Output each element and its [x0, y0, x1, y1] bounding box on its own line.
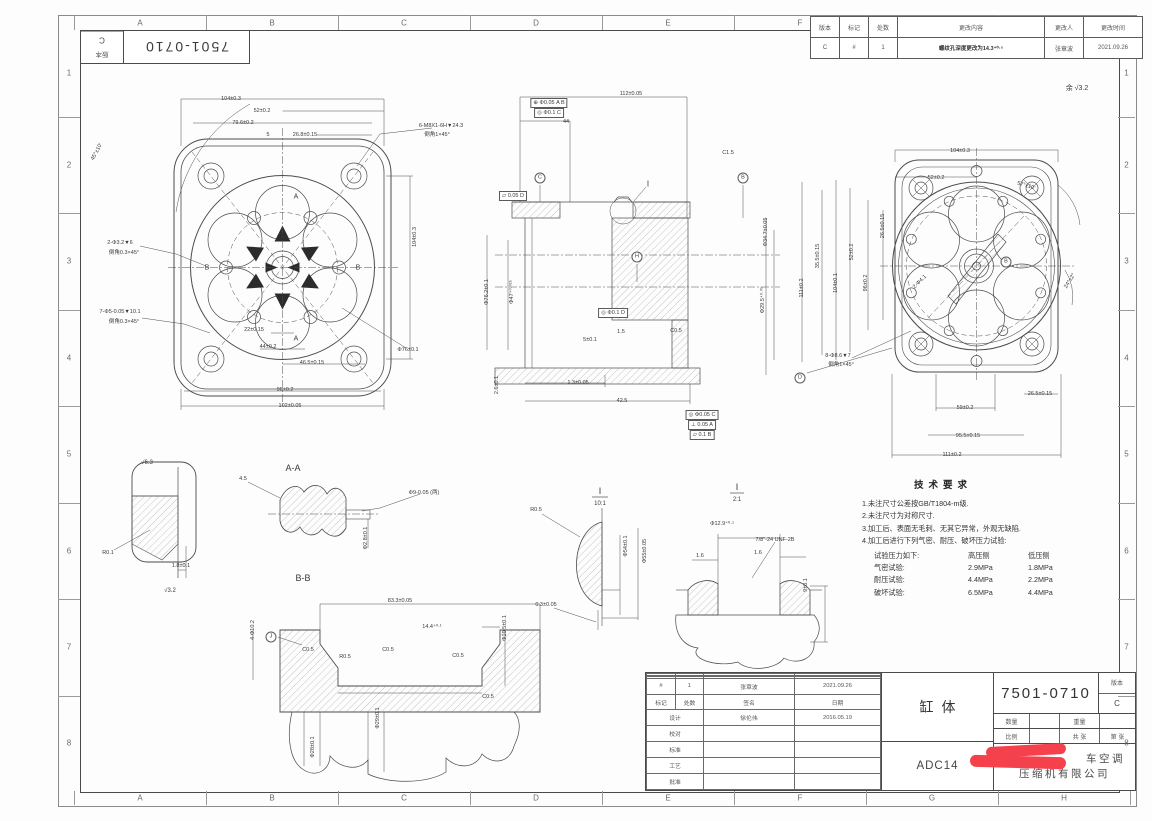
corner-part-number: 7501-0710 — [124, 31, 249, 63]
zone-row-label: 4 — [1124, 354, 1128, 363]
revision-data-cell: C — [811, 38, 840, 59]
s-cell: 处数 — [676, 694, 704, 710]
tech-requirements-title: 技术要求 — [914, 478, 1114, 495]
view-a-a — [248, 482, 420, 548]
zone-row-label: 8 — [1124, 739, 1128, 748]
s-cell — [704, 773, 795, 789]
sign-label-cell: 标准 — [647, 742, 704, 758]
zone-col-label: H — [1061, 794, 1067, 803]
tech-note-line: 1.未注尺寸公差按GB/T1804-m级. — [862, 498, 1114, 511]
zone-row-label: 5 — [67, 450, 71, 459]
s-cell: # — [647, 678, 676, 694]
s-cell: 2016.05.19 — [795, 710, 881, 726]
zone-row-label: 3 — [1124, 257, 1128, 266]
revision-data-cell: 张章波 — [1045, 38, 1084, 59]
pressure-cell: 4.4MPa — [968, 574, 1028, 586]
zone-col-label: A — [137, 18, 142, 27]
title-block: #1张章波2021.09.26标记处数签名日期设计徐伦伟2016.05.19校对… — [645, 672, 1136, 791]
zone-row-label: 5 — [1124, 450, 1128, 459]
signature-grid: #1张章波2021.09.26标记处数签名日期设计徐伦伟2016.05.19校对… — [646, 673, 881, 790]
zone-col-label: G — [929, 794, 935, 803]
s-cell: 1 — [676, 678, 704, 694]
tech-requirements-notes: 1.未注尺寸公差按GB/T1804-m级.2.未注尺寸为对称尺寸.3.加工后、表… — [862, 498, 1114, 548]
pressure-row: 试验压力如下:高压侧低压侧 — [874, 550, 1114, 562]
zone-ruler-bottom: ABCDEFGH — [58, 791, 1136, 805]
pressure-row: 耐压试验:4.4MPa2.2MPa — [874, 574, 1114, 586]
s-cell: 标记 — [647, 694, 676, 710]
title-block-right: 7501-0710 版本 C 数量重量 比例共 张第 张 车空调 压缩机有限公司 — [994, 673, 1135, 790]
title-block-middle: 缸体 ADC14 — [881, 673, 994, 790]
company-line2: 压缩机有限公司 — [1019, 767, 1110, 782]
sign-label-cell: 批准 — [647, 773, 704, 789]
tech-note-line: 4.加工后进行下列气密、耐压、破坏压力试验: — [862, 535, 1114, 548]
s-cell — [795, 758, 881, 774]
zone-row-label: 1 — [67, 69, 71, 78]
pressure-cell: 试验压力如下: — [874, 550, 968, 562]
zone-col-label: E — [665, 794, 670, 803]
pressure-cell: 破坏试验: — [874, 587, 968, 599]
tb-field-label: 数量 — [994, 714, 1030, 728]
pressure-cell: 低压侧 — [1028, 550, 1088, 562]
corner-version-cell: C 版本 — [81, 31, 124, 63]
tech-note-line: 3.加工后、表面无毛刺、无其它异常，外观无缺陷. — [862, 523, 1114, 536]
pressure-cell: 2.2MPa — [1028, 574, 1088, 586]
zone-col-label: E — [665, 18, 670, 27]
view-rear — [802, 148, 1080, 458]
zone-col-label: F — [798, 18, 803, 27]
view-corner-detail — [114, 462, 196, 578]
corner-version-value: C — [81, 31, 123, 48]
revision-header-cell: 更改内容 — [898, 17, 1045, 38]
zone-row-label: 4 — [67, 354, 71, 363]
zone-row-label: 6 — [1124, 547, 1128, 556]
pressure-test-table: 试验压力如下:高压侧低压侧气密试验:2.9MPa1.8MPa耐压试验:4.4MP… — [874, 550, 1114, 599]
zone-row-label: 3 — [67, 257, 71, 266]
tb-field-label — [1030, 714, 1060, 728]
zone-col-label: B — [269, 18, 274, 27]
s-cell: 徐伦伟 — [704, 710, 795, 726]
view-section — [487, 97, 780, 404]
pressure-cell: 2.9MPa — [968, 562, 1028, 574]
zone-col-label: B — [269, 794, 274, 803]
pressure-row: 气密试验:2.9MPa1.8MPa — [874, 562, 1114, 574]
zone-row-label: 8 — [67, 739, 71, 748]
sign-label-cell: 设计 — [647, 710, 704, 726]
zone-ruler-right: 12345678 — [1118, 30, 1135, 791]
pressure-cell: 1.8MPa — [1028, 562, 1088, 574]
part-number: 7501-0710 — [994, 673, 1098, 713]
zone-row-label: 1 — [1124, 69, 1128, 78]
revision-table: 版本标记处数更改内容更改人更改时间C#1螺纹孔深度更改为14.3⁺⁰·⁵张章波2… — [810, 16, 1143, 59]
redaction-mark — [970, 755, 1066, 770]
tech-note-line: 2.未注尺寸为对称尺寸. — [862, 510, 1114, 523]
pressure-cell: 耐压试验: — [874, 574, 968, 586]
zone-row-label: 2 — [1124, 161, 1128, 170]
zone-col-label: C — [401, 18, 407, 27]
revision-header-cell: 标记 — [840, 17, 869, 38]
zone-col-label: D — [533, 794, 539, 803]
zone-col-label: F — [798, 794, 803, 803]
s-cell: 签名 — [704, 694, 795, 710]
view-detail-2-1 — [676, 493, 828, 668]
part-name: 缸体 — [882, 673, 993, 742]
sign-label-cell: 校对 — [647, 726, 704, 742]
s-cell: 日期 — [795, 694, 881, 710]
zone-col-label: A — [137, 794, 142, 803]
s-cell — [704, 742, 795, 758]
zone-ruler-left: 12345678 — [58, 30, 80, 791]
view-b-b — [253, 604, 540, 781]
sign-label-cell: 工艺 — [647, 758, 704, 774]
s-cell — [795, 773, 881, 789]
tb-field-label — [1030, 729, 1060, 743]
s-cell: 张章波 — [704, 678, 795, 694]
revision-data-cell: 螺纹孔深度更改为14.3⁺⁰·⁵ — [898, 38, 1045, 59]
pressure-row: 破坏试验:6.5MPa4.4MPa — [874, 587, 1114, 599]
technical-requirements: 技术要求 1.未注尺寸公差按GB/T1804-m级.2.未注尺寸为对称尺寸.3.… — [862, 478, 1114, 599]
pressure-cell: 高压侧 — [968, 550, 1028, 562]
corner-version-label: 版本 — [81, 48, 123, 64]
engineering-drawing-sheet: 104±0.352±0.279.6±0.226.8±0.1556-M8X1-6H… — [0, 0, 1152, 821]
tb-field-label: 比例 — [994, 729, 1030, 743]
corner-part-number-block: C 版本 7501-0710 — [80, 30, 250, 64]
zone-row-label: 6 — [67, 547, 71, 556]
revision-header-cell: 版本 — [811, 17, 840, 38]
zone-col-label: D — [533, 18, 539, 27]
revision-data-cell: 1 — [869, 38, 898, 59]
view-detail-10-1 — [542, 497, 638, 630]
revision-header-cell: 处数 — [869, 17, 898, 38]
tb-field-label: 重量 — [1060, 714, 1100, 728]
s-cell: 2021.09.26 — [795, 678, 881, 694]
zone-col-label: C — [401, 794, 407, 803]
qty-weight-row: 数量重量 — [994, 714, 1135, 729]
s-cell — [704, 758, 795, 774]
revision-header-cell: 更改人 — [1045, 17, 1084, 38]
s-cell — [795, 742, 881, 758]
s-cell — [795, 726, 881, 742]
zone-row-label: 2 — [67, 161, 71, 170]
revision-data-cell: # — [840, 38, 869, 59]
view-front — [140, 99, 432, 410]
s-cell — [704, 726, 795, 742]
pressure-cell: 气密试验: — [874, 562, 968, 574]
scale-sheet-row: 比例共 张第 张 — [994, 729, 1135, 744]
zone-row-label: 7 — [67, 643, 71, 652]
pressure-cell: 6.5MPa — [968, 587, 1028, 599]
zone-row-label: 7 — [1124, 643, 1128, 652]
pressure-cell: 4.4MPa — [1028, 587, 1088, 599]
tb-field-label: 共 张 — [1060, 729, 1100, 743]
